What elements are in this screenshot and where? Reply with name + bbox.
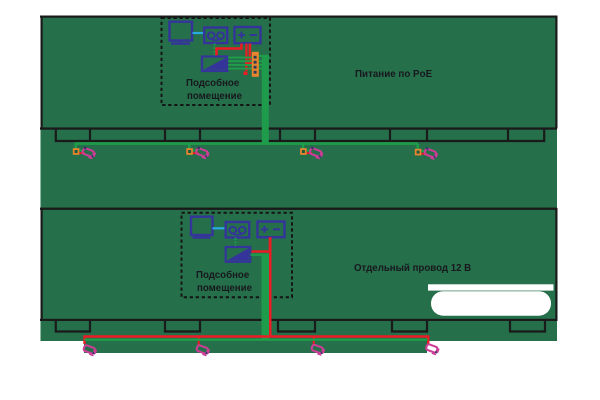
svg-text:помещение: помещение — [197, 283, 253, 294]
svg-text:Подсобное: Подсобное — [196, 270, 250, 281]
svg-text:помещение: помещение — [187, 91, 243, 102]
svg-text:Отдельный провод 12 В: Отдельный провод 12 В — [354, 263, 471, 274]
svg-text:Питание по PoE: Питание по PoE — [355, 69, 433, 80]
svg-text:Подсобное: Подсобное — [186, 78, 240, 89]
